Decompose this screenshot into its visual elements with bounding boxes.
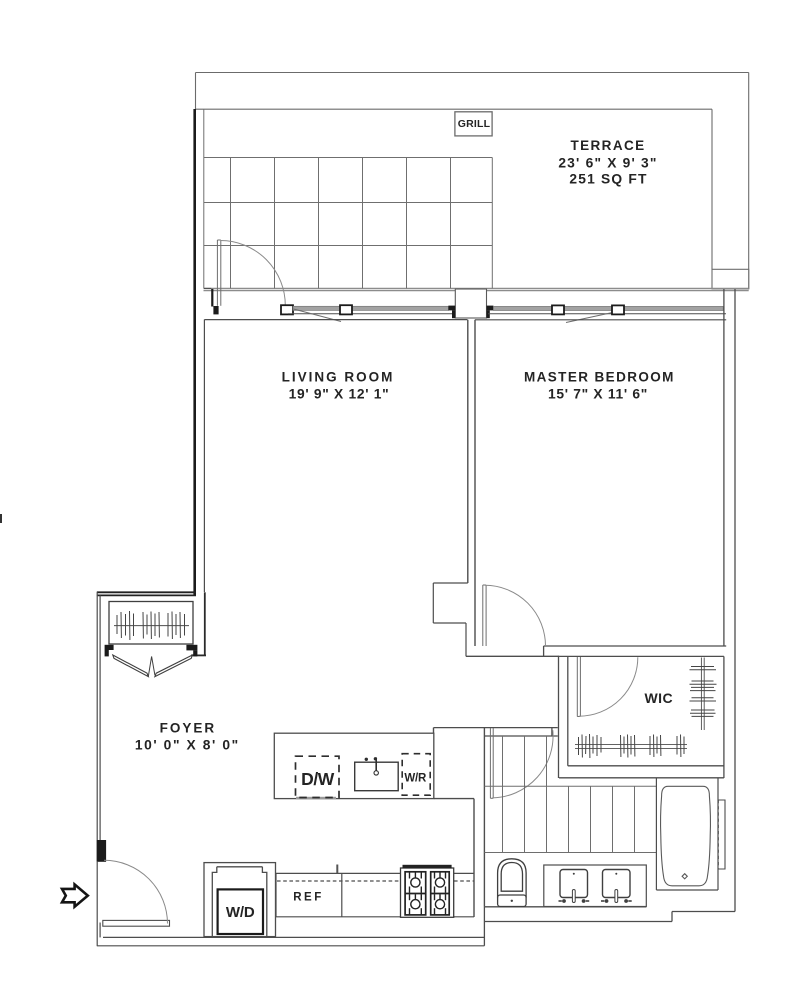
svg-text:W/D: W/D [226,904,255,921]
svg-text:W/R: W/R [404,773,427,785]
svg-text:D/W: D/W [301,769,335,789]
svg-text:251 SQ FT: 251 SQ FT [569,172,647,187]
svg-text:LIVING ROOM: LIVING ROOM [282,370,395,385]
svg-text:19' 9" X 12' 1": 19' 9" X 12' 1" [289,386,390,401]
svg-text:FOYER: FOYER [160,721,217,736]
svg-text:REF: REF [293,892,324,904]
svg-text:15' 7" X 11' 6": 15' 7" X 11' 6" [548,387,648,402]
svg-text:TERRACE: TERRACE [570,138,645,153]
svg-text:GRILL: GRILL [458,118,491,130]
svg-text:10' 0" X 8' 0": 10' 0" X 8' 0" [135,737,240,752]
svg-text:23' 6" X 9' 3": 23' 6" X 9' 3" [558,156,657,171]
svg-text:MASTER BEDROOM: MASTER BEDROOM [524,369,675,384]
svg-text:WIC: WIC [644,690,673,706]
